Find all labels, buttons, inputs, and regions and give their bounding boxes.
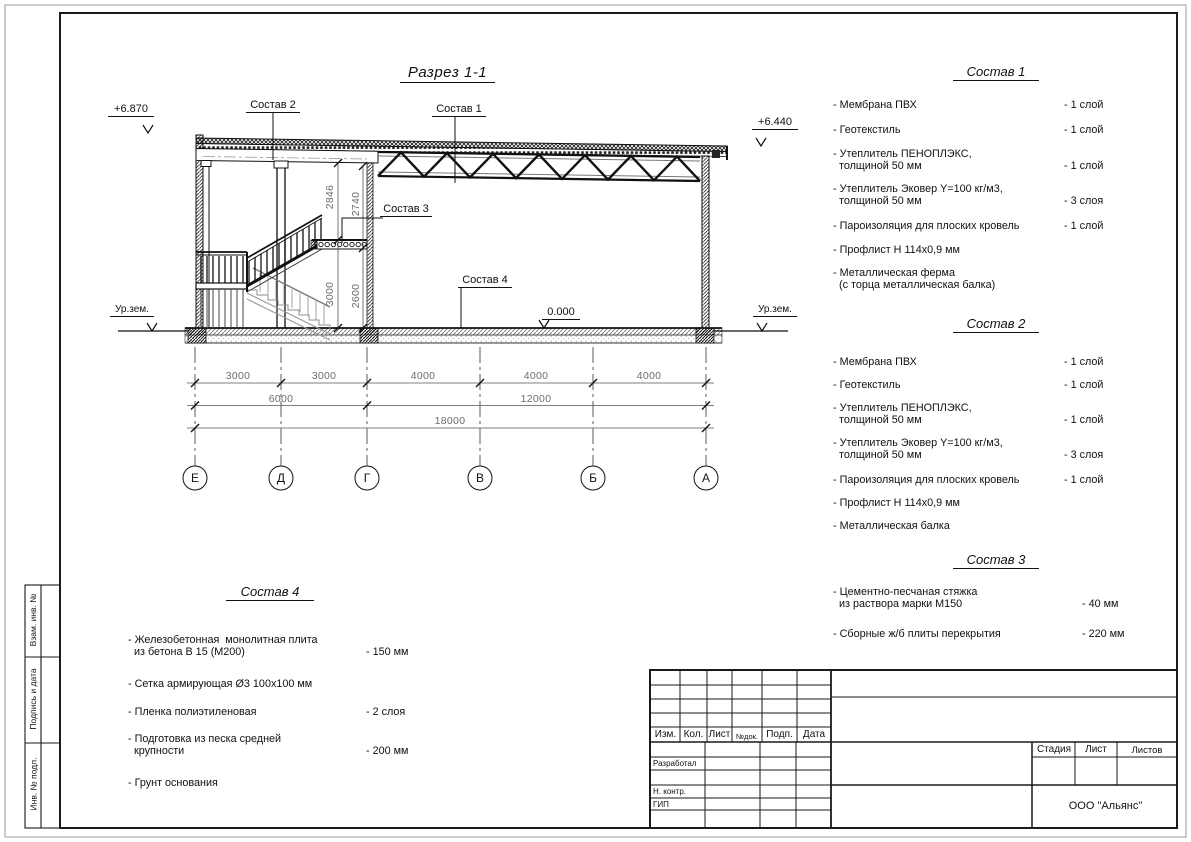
list-item: - Подготовка из песка средней крупности-… <box>128 733 428 757</box>
titleblock-header-podp: Подп. <box>762 729 797 740</box>
list-item: - Сетка армирующая Ø3 100х100 мм <box>128 678 428 690</box>
dim-6000: 6000 <box>261 393 301 405</box>
sidebar-label-vzam: Взам. инв. № <box>28 584 38 656</box>
list-item: - Утеплитель ПЕНОПЛЭКС, толщиной 50 мм- … <box>833 148 1133 172</box>
titleblock-company: ООО "Альянс" <box>1034 800 1177 812</box>
list-item: - Профлист Н 114х0,9 мм <box>833 497 1133 509</box>
axis-bubble-e: Е <box>183 471 207 485</box>
titleblock-header-data: Дата <box>797 729 831 740</box>
elevation-label-floor: 0.000 <box>542 306 580 320</box>
second-floor-slab <box>311 240 367 249</box>
list-item: - Железобетонная монолитная плита из бет… <box>128 634 428 658</box>
titleblock-header-ndok: №док. <box>732 732 762 741</box>
list-item: - Пароизоляция для плоских кровель- 1 сл… <box>833 220 1133 232</box>
titleblock-sheet-label: Лист <box>1075 744 1117 755</box>
axis-bubble-v: В <box>468 471 492 485</box>
dim-4000-2: 4000 <box>516 370 556 382</box>
floor-slab <box>118 328 788 343</box>
leader-label-sostav-3: Состав 3 <box>380 203 432 217</box>
axis-bubble-g: Г <box>355 471 379 485</box>
list-item: - Пленка полиэтиленовая- 2 слоя <box>128 706 428 718</box>
sostav3-heading: Состав 3 <box>953 552 1039 569</box>
sidebar-label-inv: Инв. № подл. <box>29 742 39 827</box>
leader-label-sostav-1: Состав 1 <box>432 103 486 117</box>
dim-3000-v: 3000 <box>324 274 336 314</box>
dim-4000-1: 4000 <box>403 370 443 382</box>
axis-bubble-a: А <box>694 471 718 485</box>
walls <box>196 135 709 328</box>
leader-label-sostav-4: Состав 4 <box>458 274 512 288</box>
stair <box>196 215 330 340</box>
list-item: - Утеплитель ПЕНОПЛЭКС, толщиной 50 мм- … <box>833 402 1133 426</box>
list-item: - Металлическая ферма (с торца металличе… <box>833 267 1133 291</box>
list-item: - Сборные ж/б плиты перекрытия- 220 мм <box>833 628 1143 640</box>
elevation-label-left: +6.870 <box>108 103 154 117</box>
dim-3000-2: 3000 <box>304 370 344 382</box>
list-item: - Грунт основания <box>128 777 428 789</box>
titleblock-header-izm: Изм. <box>651 729 680 740</box>
titleblock-role-developer: Разработал <box>653 759 697 768</box>
elevation-label-right: +6.440 <box>752 116 798 130</box>
leader-label-sostav-2: Состав 2 <box>246 99 300 113</box>
dim-18000: 18000 <box>425 415 475 427</box>
ground-level-label-left: Ур.зем. <box>110 304 154 317</box>
list-item: - Утеплитель Эковер Y=100 кг/м3, толщино… <box>833 183 1133 207</box>
dim-4000-3: 4000 <box>629 370 669 382</box>
titleblock-sheets-label: Листов <box>1117 745 1177 756</box>
list-item: - Геотекстиль- 1 слой <box>833 379 1133 391</box>
roof-truss <box>378 152 700 181</box>
titleblock-header-kol: Кол. <box>680 729 707 740</box>
drawing-title: Разрез 1-1 <box>400 64 495 83</box>
list-item: - Профлист Н 114х0,9 мм <box>833 244 1133 256</box>
ground-level-label-right: Ур.зем. <box>753 304 797 317</box>
sostav4-heading: Состав 4 <box>226 584 314 601</box>
drawing-sheet: Разрез 1-1 +6.870 +6.440 0.000 Ур.зем. У… <box>0 0 1191 842</box>
dim-3000-1: 3000 <box>218 370 258 382</box>
titleblock-role-ncontrol: Н. контр. <box>653 787 686 796</box>
titleblock-header-list: Лист <box>707 729 732 740</box>
roof <box>196 138 727 163</box>
dim-2740: 2740 <box>350 184 362 224</box>
list-item: - Пароизоляция для плоских кровель- 1 сл… <box>833 474 1133 486</box>
list-item: - Геотекстиль- 1 слой <box>833 124 1133 136</box>
list-item: - Мембрана ПВХ- 1 слой <box>833 99 1133 111</box>
dim-12000: 12000 <box>511 393 561 405</box>
titleblock-role-gip: ГИП <box>653 800 669 809</box>
list-item: - Цементно-песчаная стяжка из раствора м… <box>833 586 1143 610</box>
sidebar-label-podpis: Подпись и дата <box>28 656 38 742</box>
axis-bubble-b: Б <box>581 471 605 485</box>
dim-2846: 2846 <box>324 177 336 217</box>
axis-bubble-d: Д <box>269 471 293 485</box>
dim-2600: 2600 <box>350 276 362 316</box>
list-item: - Металлическая балка <box>833 520 1133 532</box>
titleblock-stage-label: Стадия <box>1033 744 1075 755</box>
list-item: - Утеплитель Эковер Y=100 кг/м3, толщино… <box>833 437 1133 461</box>
list-item: - Мембрана ПВХ- 1 слой <box>833 356 1133 368</box>
sostav2-heading: Состав 2 <box>953 316 1039 333</box>
sostav1-heading: Состав 1 <box>953 64 1039 81</box>
